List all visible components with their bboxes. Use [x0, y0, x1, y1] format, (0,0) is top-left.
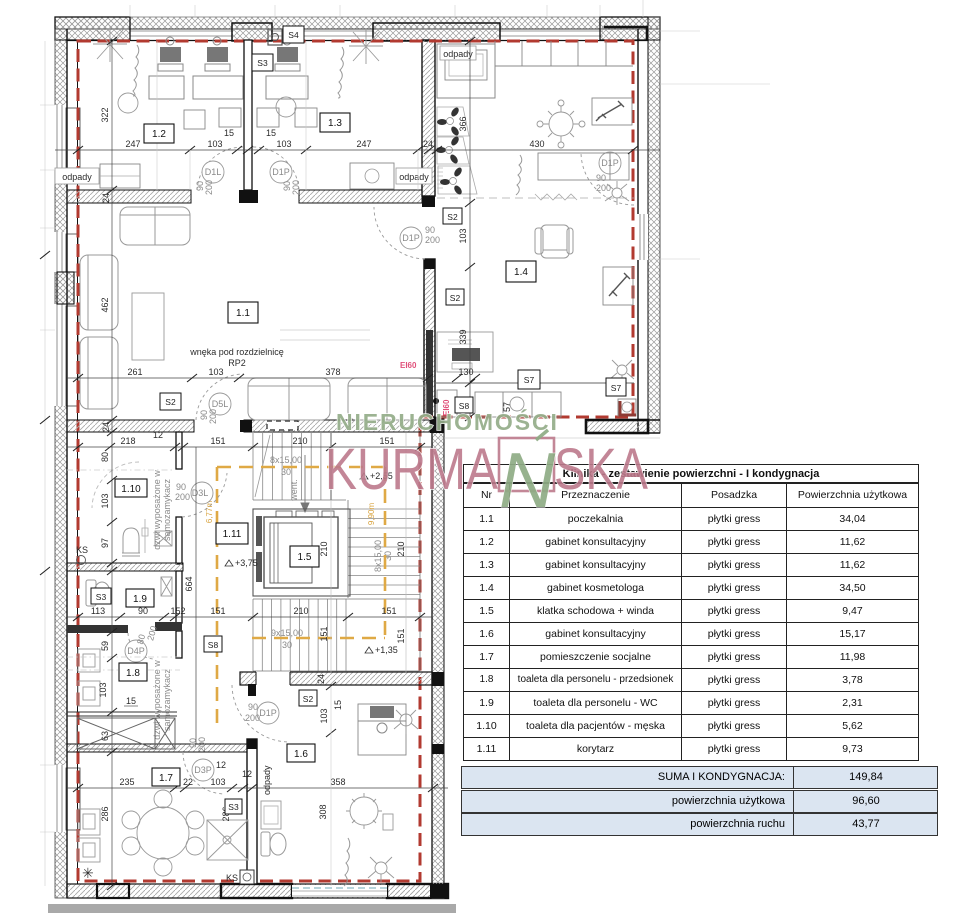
svg-text:261: 261: [127, 367, 142, 377]
svg-text:63: 63: [100, 731, 110, 741]
svg-text:200: 200: [245, 713, 260, 723]
svg-text:S8: S8: [208, 640, 219, 650]
svg-text:odpady: odpady: [62, 172, 92, 182]
svg-text:113: 113: [91, 606, 105, 616]
svg-text:1.8: 1.8: [126, 668, 140, 679]
svg-text:322: 322: [100, 107, 110, 122]
svg-text:152: 152: [170, 606, 185, 616]
svg-text:S4: S4: [288, 30, 299, 40]
svg-text:210: 210: [292, 436, 307, 446]
svg-text:664: 664: [184, 576, 194, 591]
svg-text:9,90m: 9,90m: [367, 503, 376, 526]
svg-text:366: 366: [458, 116, 468, 131]
svg-text:200: 200: [197, 737, 207, 752]
svg-text:S3: S3: [96, 592, 107, 602]
svg-text:12: 12: [153, 430, 163, 440]
svg-text:15: 15: [126, 696, 136, 706]
svg-text:59: 59: [100, 641, 110, 651]
svg-text:EI60: EI60: [400, 361, 417, 370]
svg-text:1.3: 1.3: [328, 118, 342, 129]
svg-text:103: 103: [319, 708, 329, 723]
svg-text:151: 151: [319, 626, 329, 641]
svg-text:24: 24: [101, 422, 111, 432]
svg-text:S2: S2: [165, 397, 176, 407]
svg-text:210: 210: [319, 541, 329, 556]
svg-text:90: 90: [248, 702, 258, 712]
svg-text:S7: S7: [611, 383, 622, 393]
svg-text:90: 90: [596, 173, 606, 183]
svg-text:D3L: D3L: [192, 488, 209, 498]
svg-text:462: 462: [100, 297, 110, 312]
svg-text:200: 200: [291, 180, 301, 195]
svg-text:12: 12: [216, 760, 226, 770]
svg-text:wnęka pod rozdzielnicę: wnęka pod rozdzielnicę: [189, 347, 284, 357]
svg-text:D1P: D1P: [402, 233, 420, 243]
svg-text:1.6: 1.6: [294, 749, 308, 760]
svg-text:S3: S3: [228, 802, 239, 812]
svg-text:103: 103: [100, 493, 110, 508]
svg-text:samozamykacz: samozamykacz: [162, 668, 172, 731]
svg-text:D4P: D4P: [127, 646, 145, 656]
svg-text:D1P: D1P: [272, 167, 290, 177]
svg-text:S7: S7: [524, 375, 535, 385]
svg-text:200: 200: [175, 492, 190, 502]
svg-text:6,77m: 6,77m: [205, 501, 214, 524]
svg-text:151: 151: [210, 606, 225, 616]
svg-text:1.2: 1.2: [152, 129, 166, 140]
svg-text:103: 103: [98, 682, 108, 697]
svg-text:151: 151: [396, 628, 406, 643]
svg-text:1.10: 1.10: [121, 484, 141, 495]
svg-text:D1P: D1P: [259, 708, 277, 718]
svg-text:S2: S2: [450, 293, 461, 303]
svg-text:S2: S2: [303, 694, 314, 704]
svg-text:103: 103: [210, 777, 225, 787]
svg-text:1.9: 1.9: [133, 594, 147, 605]
svg-text:+3,75: +3,75: [235, 558, 258, 568]
svg-text:286: 286: [100, 806, 110, 821]
svg-text:151: 151: [210, 436, 225, 446]
svg-text:samozamykacz: samozamykacz: [162, 478, 172, 541]
svg-text:210: 210: [293, 606, 308, 616]
svg-text:✳: ✳: [82, 865, 94, 881]
svg-text:+1,35: +1,35: [375, 645, 398, 655]
svg-text:57: 57: [502, 402, 512, 412]
svg-text:151: 151: [379, 436, 394, 446]
svg-text:200: 200: [204, 180, 214, 195]
svg-text:90: 90: [425, 225, 435, 235]
svg-text:247: 247: [356, 139, 371, 149]
svg-text:odpady: odpady: [443, 49, 473, 59]
svg-text:90: 90: [176, 482, 186, 492]
svg-text:200: 200: [596, 183, 611, 193]
svg-text:15: 15: [266, 128, 276, 138]
svg-text:247: 247: [125, 139, 140, 149]
svg-text:S2: S2: [447, 212, 458, 222]
svg-text:odpady: odpady: [399, 172, 429, 182]
svg-text:430: 430: [529, 139, 544, 149]
svg-text:8x15,00: 8x15,00: [270, 455, 302, 465]
svg-text:1.7: 1.7: [159, 773, 173, 784]
svg-text:KS: KS: [226, 873, 238, 883]
svg-text:D5L: D5L: [212, 399, 229, 409]
svg-text:15: 15: [224, 128, 234, 138]
svg-text:9x15,00: 9x15,00: [271, 628, 303, 638]
svg-text:24: 24: [101, 193, 111, 203]
svg-text:RP2: RP2: [228, 358, 246, 368]
svg-text:103: 103: [208, 367, 223, 377]
svg-text:D3P: D3P: [194, 765, 212, 775]
svg-text:24: 24: [316, 674, 326, 684]
svg-text:97: 97: [100, 538, 110, 548]
svg-text:80: 80: [100, 452, 110, 462]
svg-text:+2,55: +2,55: [370, 471, 393, 481]
svg-text:dzwi wyposażone w: dzwi wyposażone w: [152, 660, 162, 740]
svg-text:dzwi wyposażone w: dzwi wyposażone w: [152, 470, 162, 550]
svg-text:210: 210: [396, 541, 406, 556]
svg-text:24: 24: [423, 139, 433, 149]
svg-text:103: 103: [276, 139, 291, 149]
svg-text:200: 200: [145, 625, 159, 642]
svg-text:S3: S3: [257, 58, 268, 68]
svg-text:15: 15: [333, 700, 343, 710]
svg-text:358: 358: [330, 777, 345, 787]
svg-text:151: 151: [381, 606, 396, 616]
svg-text:1.1: 1.1: [236, 308, 250, 319]
svg-text:200: 200: [208, 409, 218, 424]
svg-text:12: 12: [242, 769, 252, 779]
svg-text:308: 308: [318, 804, 328, 819]
svg-text:1.4: 1.4: [514, 267, 528, 278]
svg-text:odpady: odpady: [262, 765, 272, 795]
svg-text:103: 103: [207, 139, 222, 149]
svg-text:30: 30: [282, 640, 292, 650]
svg-text:218: 218: [120, 436, 135, 446]
svg-text:S8: S8: [459, 401, 470, 411]
svg-text:200: 200: [425, 235, 440, 245]
svg-text:went.: went.: [289, 479, 299, 502]
svg-text:235: 235: [119, 777, 134, 787]
svg-text:1.5: 1.5: [298, 552, 312, 563]
svg-text:8x15,00: 8x15,00: [373, 540, 383, 572]
svg-text:1.11: 1.11: [223, 529, 242, 540]
svg-text:339: 339: [458, 329, 468, 344]
svg-text:EI60: EI60: [442, 399, 451, 416]
svg-text:378: 378: [325, 367, 340, 377]
svg-text:103: 103: [458, 228, 468, 243]
svg-text:KS: KS: [76, 545, 88, 555]
svg-text:D1L: D1L: [205, 167, 222, 177]
svg-text:30: 30: [281, 467, 291, 477]
svg-text:22: 22: [183, 777, 193, 787]
